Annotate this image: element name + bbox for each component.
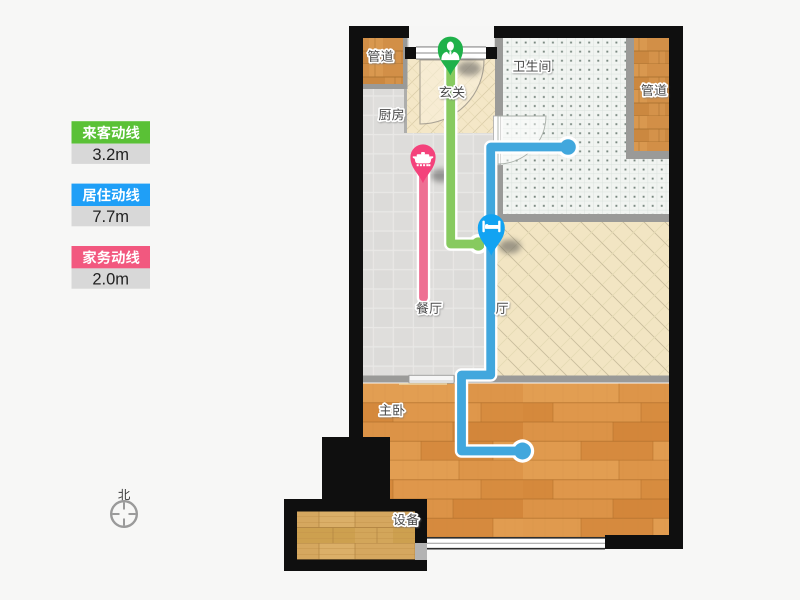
svg-text:2.0m: 2.0m: [92, 271, 129, 289]
svg-text:3.2m: 3.2m: [92, 146, 129, 164]
svg-text:7.7m: 7.7m: [92, 208, 129, 226]
